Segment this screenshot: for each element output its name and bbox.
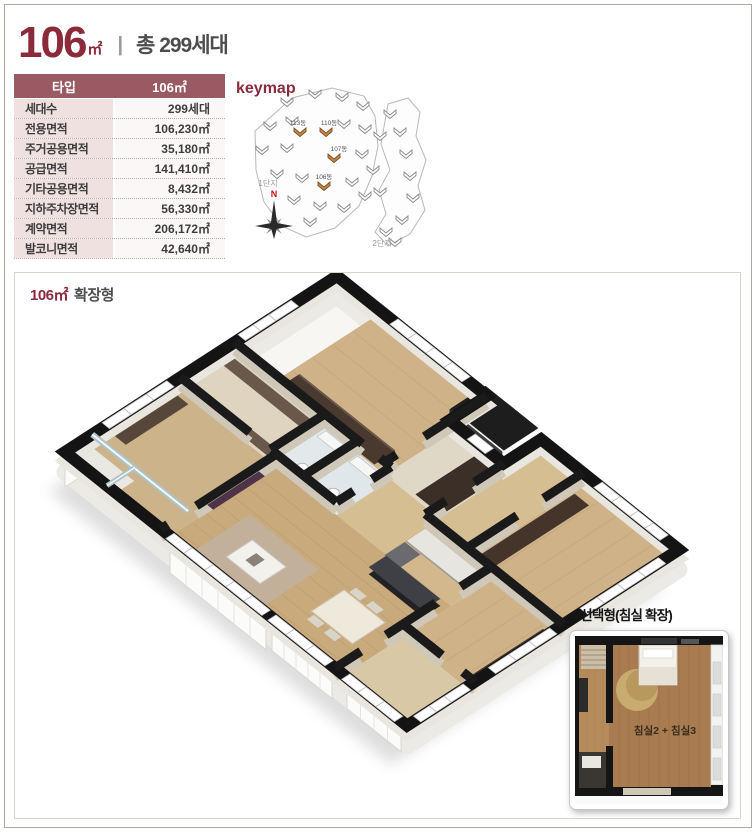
row-label: 주거공용면적 xyxy=(14,139,113,158)
row-value: 8,432㎡ xyxy=(115,179,225,198)
row-value: 56,330㎡ xyxy=(115,199,225,218)
table-row: 기타공용면적 8,432㎡ xyxy=(14,179,225,199)
row-value: 299세대 xyxy=(115,99,225,118)
floorplan-section: 106㎡확장형 ■ 선택형(침실 확장) xyxy=(14,272,741,819)
table-row: 지하주차장면적 56,330㎡ xyxy=(14,199,225,219)
spec-header-value: 106㎡ xyxy=(114,77,225,96)
option-inset: ■ 선택형(침실 확장) xyxy=(569,604,735,810)
building-label: 110동 xyxy=(321,119,337,127)
table-row: 주거공용면적 35,180㎡ xyxy=(14,139,225,159)
unit-size: 106 xyxy=(18,23,85,63)
floorplan-title-size: 106㎡ xyxy=(30,287,68,304)
table-row: 공급면적 141,410㎡ xyxy=(14,159,225,179)
row-label: 발코니면적 xyxy=(14,239,113,258)
header-divider: | xyxy=(117,34,123,57)
area-label-1: 1단지 xyxy=(258,178,277,188)
building-label: 107동 xyxy=(331,145,348,153)
floorplan-title: 106㎡확장형 xyxy=(30,284,114,305)
page-header: 106 ㎡ | 총 299세대 xyxy=(18,11,228,63)
inset-room-label: 침실2 + 침실3 xyxy=(634,724,696,737)
spec-table: 타입 106㎡ 세대수 299세대 전용면적 106,230㎡ 주거공용면적 3… xyxy=(14,74,225,259)
row-value: 35,180㎡ xyxy=(115,139,225,158)
row-label: 세대수 xyxy=(14,99,113,118)
row-value: 141,410㎡ xyxy=(115,159,225,178)
total-households: 총 299세대 xyxy=(136,29,228,59)
floorplan-title-type: 확장형 xyxy=(74,287,114,304)
row-label: 지하주차장면적 xyxy=(14,199,113,218)
option-inset-plan: 침실2 + 침실3 xyxy=(569,630,729,810)
keymap: keymap 113동 110동 107동 106동 1단지 2단지 N xyxy=(232,74,444,260)
table-row: 세대수 299세대 xyxy=(14,99,225,119)
row-value: 206,172㎡ xyxy=(115,219,225,238)
unit-type-page: 106 ㎡ | 총 299세대 타입 106㎡ 세대수 299세대 전용면적 1… xyxy=(0,0,756,832)
spec-header-label: 타입 xyxy=(14,77,114,96)
spec-table-header: 타입 106㎡ xyxy=(14,74,225,98)
area-label-2: 2단지 xyxy=(372,238,391,248)
row-label: 공급면적 xyxy=(14,159,113,178)
table-row: 전용면적 106,230㎡ xyxy=(14,119,225,139)
building-label: 113동 xyxy=(290,119,306,127)
building-label: 106동 xyxy=(316,173,333,181)
row-label: 계약면적 xyxy=(14,219,113,238)
keymap-title: keymap xyxy=(236,80,296,97)
option-inset-title: ■ 선택형(침실 확장) xyxy=(570,604,735,624)
row-value: 42,640㎡ xyxy=(115,239,225,258)
row-label: 전용면적 xyxy=(14,119,113,138)
row-label: 기타공용면적 xyxy=(14,179,113,198)
compass-north-label: N xyxy=(271,189,278,199)
unit-size-sqm: ㎡ xyxy=(87,38,102,59)
table-row: 계약면적 206,172㎡ xyxy=(14,219,225,239)
table-row: 발코니면적 42,640㎡ xyxy=(14,239,225,259)
row-value: 106,230㎡ xyxy=(115,119,225,138)
